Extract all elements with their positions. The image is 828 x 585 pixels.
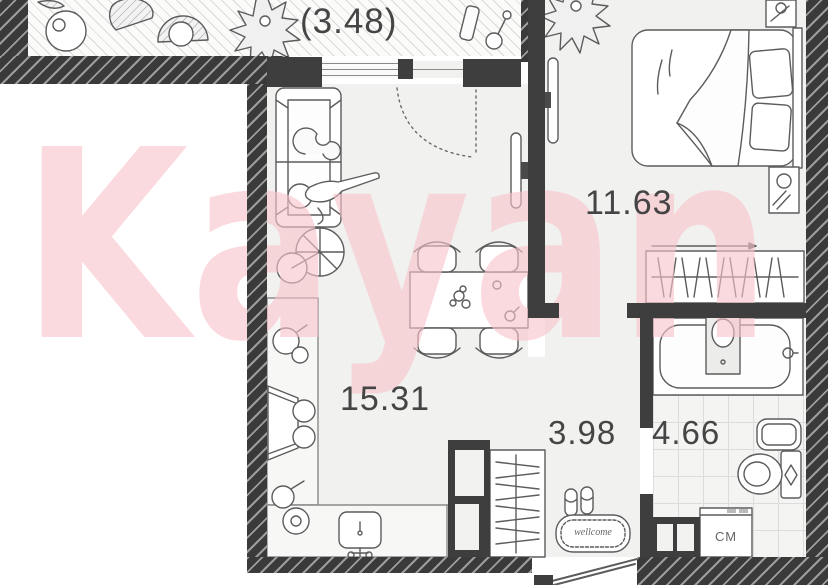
hallway-area-label: 3.98 [548,414,616,452]
bicycle-icon [277,228,344,283]
window-mullion [398,59,413,79]
entry-jamb-block [534,575,553,585]
slippers-icon [565,487,593,516]
pillow [749,48,793,98]
pillow [749,103,791,152]
right-outer-wall [806,0,828,585]
living-area-label: 15.31 [340,380,430,419]
living-bedroom-divider-wall [528,0,545,303]
dining-chair [414,242,460,272]
bathroom-sink-icon [706,316,740,374]
bath-mat-icon [757,419,801,450]
hallway-cabinet [448,440,490,557]
bathroom-door-leaf-block [653,517,700,557]
balcony-bottom-wall [0,56,288,84]
bedroom-frame-icon [766,0,796,27]
living-top-wall-right [463,59,521,87]
dining-table [410,272,528,328]
left-outer-wall [247,84,267,573]
balcony-door-opening [413,61,463,78]
bedroom-area-label: 11.63 [585,184,673,223]
bathroom-left-wall-lower [640,494,653,557]
hallway-wardrobe [490,450,545,557]
bottom-right-outer-wall [637,557,828,585]
dining-chair [476,328,522,358]
divider-wall-cap [528,303,559,318]
bedroom-tv-icon [545,58,558,143]
toilet-icon [738,451,801,498]
balcony-area-label: (3.48) [300,2,397,42]
bottom-left-outer-wall [247,557,532,573]
living-top-wall-left [267,57,322,87]
dining-chair [476,242,522,272]
door-mat-label: wellcome [556,527,630,538]
entrance-door-leaf [552,559,637,585]
bathroom-area-label: 4.66 [652,414,720,452]
bedroom-bottom-wall [627,303,806,318]
furniture-layer [0,0,828,585]
living-tv-icon [511,133,528,208]
balcony-window [322,61,398,78]
bedroom-wardrobe [646,243,804,303]
bedroom-plant-icon [540,0,610,53]
bathroom-left-wall-upper [640,318,653,428]
washing-machine-label: СМ [700,529,752,544]
dining-chair [414,328,460,358]
floor-plan: Kayan (3.48) 11.63 15.31 3.98 4.66 СМ we… [0,0,828,585]
balcony-door-arc [397,88,476,157]
mirror-icon [769,167,799,213]
